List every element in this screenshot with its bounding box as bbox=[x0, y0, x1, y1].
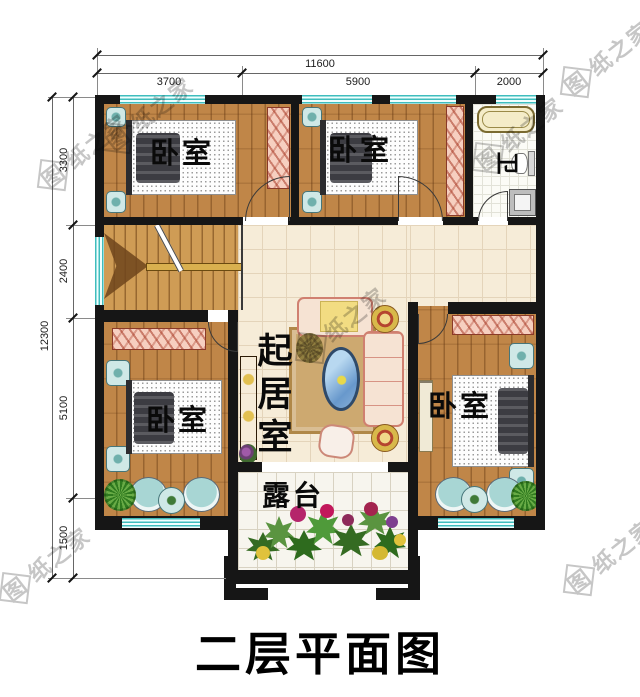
terrace-label: 露台 bbox=[262, 481, 324, 512]
dim-extension bbox=[48, 578, 226, 579]
outer-wall-right bbox=[536, 95, 545, 530]
stair-edge-line bbox=[241, 225, 243, 310]
bedroom-sw-label: 卧室 bbox=[146, 406, 210, 438]
window bbox=[302, 95, 372, 104]
wall-segment bbox=[288, 217, 398, 225]
watermark: 图纸之家 bbox=[0, 519, 97, 609]
wall-segment bbox=[95, 310, 208, 322]
side-table bbox=[461, 486, 488, 513]
flower bbox=[386, 516, 398, 528]
flower bbox=[394, 534, 406, 546]
dim-top-total: 11600 bbox=[290, 58, 350, 70]
dim-top-total-line bbox=[97, 55, 543, 56]
watermark: 图纸之家 bbox=[554, 13, 640, 103]
dim-left-seg-2: 2400 bbox=[58, 241, 70, 301]
terrace-corner-bracket bbox=[376, 588, 420, 600]
wall-living-east bbox=[408, 302, 418, 584]
dim-top-seg-3: 2000 bbox=[479, 76, 539, 88]
bed-headboard bbox=[528, 375, 534, 467]
bed-duvet bbox=[498, 388, 528, 454]
sofa-right bbox=[363, 331, 404, 427]
wall-segment bbox=[448, 302, 536, 314]
window bbox=[95, 237, 104, 305]
wardrobe bbox=[452, 315, 534, 335]
living-room-label: 起居室 bbox=[252, 332, 291, 461]
watermark: 图纸之家 bbox=[557, 511, 640, 601]
flower bbox=[372, 546, 388, 560]
dim-top-seg-2: 5900 bbox=[328, 76, 388, 88]
floor-plan-canvas: 卧室 卧室 卫 起居室 卧室 卧室 露台 11600 3700 5900 200… bbox=[0, 0, 640, 697]
nightstand bbox=[302, 107, 322, 127]
toilet-tank bbox=[528, 151, 535, 176]
bed-headboard bbox=[320, 120, 326, 195]
nightstand bbox=[509, 343, 534, 369]
wall-segment bbox=[104, 217, 243, 225]
stair-handrail bbox=[146, 263, 242, 271]
plan-title: 二层平面图 bbox=[140, 618, 500, 684]
lounge-chair bbox=[183, 477, 220, 512]
flower-bed bbox=[246, 504, 408, 570]
bedroom-se-label: 卧室 bbox=[428, 392, 492, 424]
bedroom-nw-label: 卧室 bbox=[150, 139, 214, 171]
terrace-corner-bracket bbox=[224, 588, 268, 600]
bed-headboard bbox=[126, 380, 132, 454]
flower bbox=[256, 546, 270, 560]
dim-left-total: 12300 bbox=[39, 306, 51, 366]
coffee-table bbox=[322, 347, 360, 411]
terrace-parapet bbox=[236, 570, 410, 584]
side-table bbox=[158, 487, 185, 514]
shower-basin-inner bbox=[514, 194, 531, 211]
window bbox=[122, 518, 200, 528]
potted-plant bbox=[104, 479, 136, 511]
nightstand bbox=[106, 191, 126, 213]
bedroom-n-label: 卧室 bbox=[328, 136, 392, 168]
wall-bedrooms-divider bbox=[291, 104, 299, 217]
wall-terrace-stub-right bbox=[388, 462, 408, 472]
wardrobe bbox=[112, 328, 206, 350]
plant-leaf bbox=[332, 524, 370, 558]
wall-terrace-stub-left bbox=[238, 462, 262, 472]
wardrobe bbox=[446, 106, 464, 216]
wall-segment bbox=[443, 217, 478, 225]
nightstand bbox=[302, 191, 322, 213]
window bbox=[438, 518, 514, 528]
wall-segment bbox=[508, 217, 536, 225]
flower bbox=[342, 514, 354, 526]
floor-cushion bbox=[317, 423, 356, 461]
window bbox=[390, 95, 456, 104]
flower bbox=[364, 502, 378, 516]
dim-left-seg-3: 5100 bbox=[58, 378, 70, 438]
ottoman bbox=[371, 424, 399, 452]
